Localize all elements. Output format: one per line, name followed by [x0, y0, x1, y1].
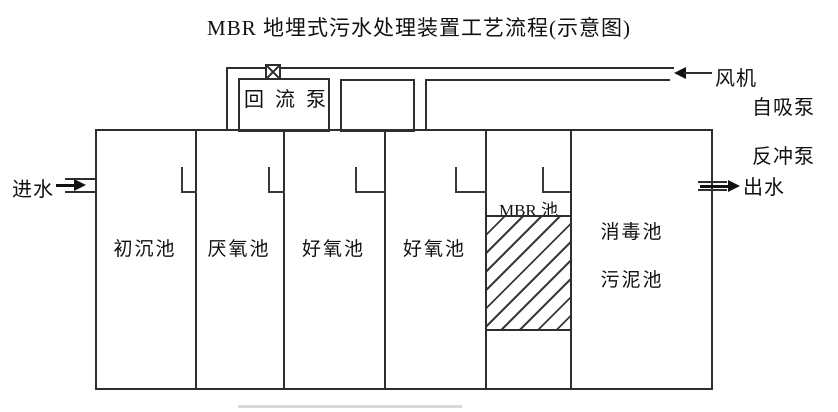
weir-overflow-1-foot [181, 191, 197, 193]
outlet-arrow-shaft [700, 185, 730, 188]
pump-box [340, 79, 415, 132]
fan-arrow-shaft [684, 72, 712, 74]
tank-label-disinfection: 消毒池 [572, 217, 692, 244]
membrane-module-bottom [485, 329, 572, 331]
outlet-label: 出水 [743, 171, 785, 200]
diagram-title: MBR 地埋式污水处理装置工艺流程(示意图) [0, 12, 838, 42]
air-pipe-riser [425, 79, 427, 130]
fan-label: 风机 [715, 62, 757, 91]
weir-overflow-3-foot [355, 191, 386, 193]
reflux-pump-label: 回流泵 [244, 83, 337, 112]
outlet-pipe-bottom [698, 189, 727, 191]
tank-label-sludge: 污泥池 [572, 265, 692, 292]
valve-icon [265, 64, 281, 80]
partition-line-5 [570, 129, 572, 390]
tank-label-aerobic-2: 好氧池 [384, 234, 485, 261]
mbr-membrane-hatch [487, 217, 570, 329]
tank-label-primary-sedimentation: 初沉池 [95, 234, 195, 261]
self-priming-pump-label: 自吸泵 [752, 91, 815, 120]
inlet-arrow-icon [74, 179, 86, 191]
weir-overflow-5 [542, 167, 544, 193]
outlet-pipe-top [698, 181, 727, 183]
tank-label-anaerobic: 厌氧池 [195, 234, 283, 261]
weir-overflow-5-foot [542, 191, 572, 193]
inlet-label: 进水 [12, 173, 54, 202]
inlet-pipe-bottom [65, 191, 97, 193]
air-pipe-upper [226, 67, 674, 69]
backwash-pump-label: 反冲泵 [752, 140, 815, 169]
weir-overflow-1 [181, 167, 183, 193]
air-pipe-lower [425, 79, 670, 81]
weir-overflow-2 [268, 167, 270, 193]
inlet-pipe-top [65, 178, 97, 180]
tank-label-aerobic-1: 好氧池 [283, 234, 384, 261]
weir-overflow-3 [355, 167, 357, 193]
outlet-arrow-icon [728, 180, 740, 192]
process-flow-diagram: MBR 地埋式污水处理装置工艺流程(示意图) 回流泵 风机 自吸泵 反冲泵 进水 [0, 0, 838, 412]
weir-overflow-4-foot [455, 191, 487, 193]
return-pipe-riser [226, 67, 228, 130]
weir-overflow-2-foot [268, 191, 285, 193]
weir-overflow-4 [455, 167, 457, 193]
page-underline [238, 405, 462, 408]
